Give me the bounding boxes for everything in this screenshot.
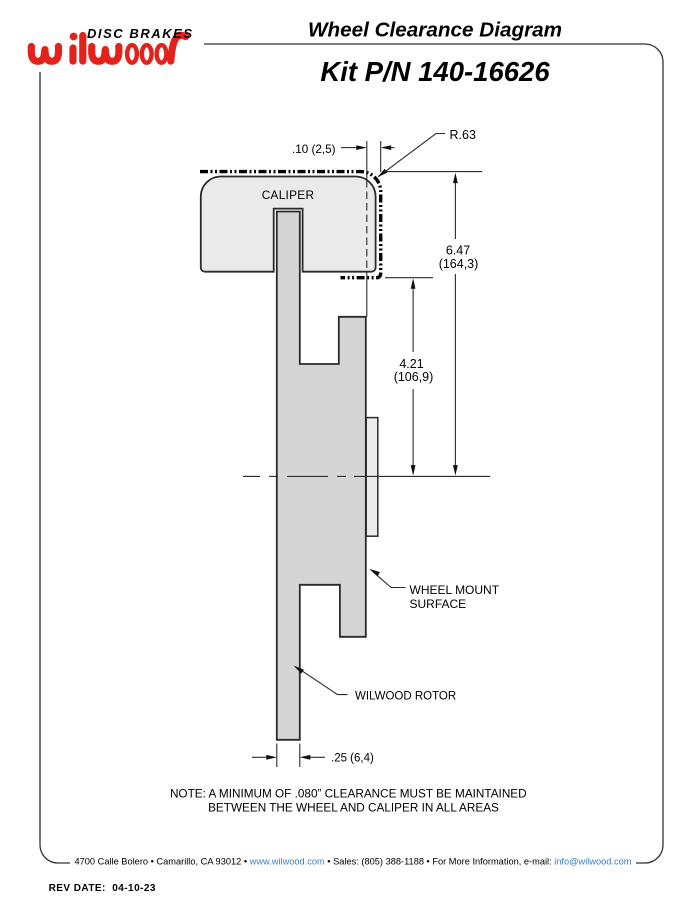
svg-text:WILWOOD ROTOR: WILWOOD ROTOR xyxy=(355,690,456,702)
svg-text:R.63: R.63 xyxy=(450,128,476,142)
svg-text:BETWEEN THE WHEEL AND CALIPER: BETWEEN THE WHEEL AND CALIPER IN ALL ARE… xyxy=(208,802,499,815)
svg-text:6.47: 6.47 xyxy=(446,244,470,258)
svg-text:.10 (2,5): .10 (2,5) xyxy=(292,143,336,156)
svg-text:SURFACE: SURFACE xyxy=(410,597,467,611)
svg-text:Wheel Clearance Diagram: Wheel Clearance Diagram xyxy=(308,19,562,42)
svg-text:NOTE: A MINIMUM OF .080” CLEAR: NOTE: A MINIMUM OF .080” CLEARANCE MUST … xyxy=(170,788,527,801)
svg-text:REV DATE: 04-10-23: REV DATE: 04-10-23 xyxy=(49,883,156,894)
svg-text:4.21: 4.21 xyxy=(399,357,423,371)
svg-text:(106,9): (106,9) xyxy=(394,370,434,384)
svg-text:Kit P/N 140-16626: Kit P/N 140-16626 xyxy=(320,56,550,87)
svg-text:(164,3): (164,3) xyxy=(439,257,479,271)
svg-text:4700 Calle Bolero • Camarillo,: 4700 Calle Bolero • Camarillo, CA 93012 … xyxy=(75,856,632,867)
svg-text:.25 (6,4): .25 (6,4) xyxy=(331,753,374,765)
svg-text:DISC BRAKES: DISC BRAKES xyxy=(87,26,192,41)
svg-text:WHEEL MOUNT: WHEEL MOUNT xyxy=(410,583,500,597)
svg-text:CALIPER: CALIPER xyxy=(262,188,315,202)
